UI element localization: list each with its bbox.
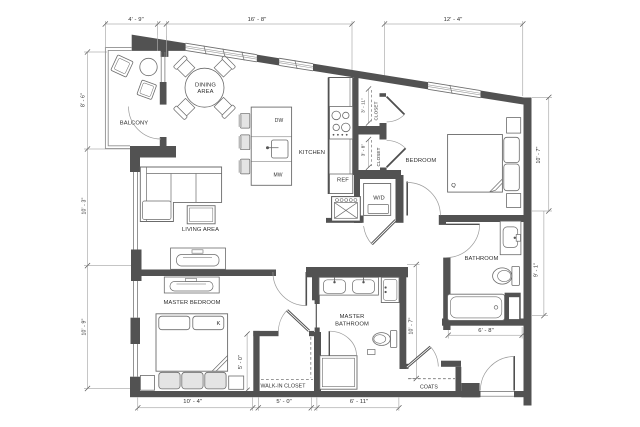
svg-text:6' - 8": 6' - 8" xyxy=(478,328,493,334)
svg-text:BATHROOM: BATHROOM xyxy=(465,256,499,262)
svg-text:LIVING AREA: LIVING AREA xyxy=(182,227,219,233)
svg-text:COATS: COATS xyxy=(420,385,438,391)
svg-text:10' - 3": 10' - 3" xyxy=(82,197,88,214)
svg-text:16' - 8": 16' - 8" xyxy=(248,17,267,23)
svg-text:10' - 7": 10' - 7" xyxy=(536,146,542,163)
svg-text:CLOSET: CLOSET xyxy=(376,147,381,166)
svg-text:5' - 0": 5' - 0" xyxy=(276,399,291,405)
svg-text:KITCHEN: KITCHEN xyxy=(299,150,325,156)
svg-text:Q: Q xyxy=(451,183,456,189)
svg-text:5' - 0": 5' - 0" xyxy=(238,355,244,369)
svg-text:6' - 11": 6' - 11" xyxy=(350,399,368,405)
svg-text:MW: MW xyxy=(273,173,282,179)
svg-text:BATHROOM: BATHROOM xyxy=(335,322,369,328)
svg-text:WALK-IN CLOSET: WALK-IN CLOSET xyxy=(260,384,306,390)
svg-text:4' - 9": 4' - 9" xyxy=(128,17,143,23)
svg-text:DINING: DINING xyxy=(195,82,216,88)
svg-text:8' - 6": 8' - 6" xyxy=(81,93,87,107)
svg-text:CLOSET: CLOSET xyxy=(374,101,379,120)
svg-text:9' - 1": 9' - 1" xyxy=(534,263,540,277)
svg-text:3' - 11": 3' - 11" xyxy=(361,98,366,113)
svg-text:3' - 8": 3' - 8" xyxy=(361,144,366,157)
svg-text:MASTER: MASTER xyxy=(340,314,365,320)
svg-text:MASTER BEDROOM: MASTER BEDROOM xyxy=(163,300,220,306)
svg-text:12' - 4": 12' - 4" xyxy=(444,17,463,23)
svg-text:W/D: W/D xyxy=(373,195,385,201)
svg-text:10' - 7": 10' - 7" xyxy=(409,317,415,334)
svg-text:10' - 4": 10' - 4" xyxy=(183,399,202,405)
svg-text:BALCONY: BALCONY xyxy=(120,121,148,127)
svg-text:10' - 9": 10' - 9" xyxy=(82,318,88,335)
svg-text:BEDROOM: BEDROOM xyxy=(406,158,437,164)
svg-text:AREA: AREA xyxy=(197,89,213,95)
svg-text:K: K xyxy=(217,321,221,327)
svg-text:DW: DW xyxy=(275,118,284,124)
svg-text:REF: REF xyxy=(337,177,349,183)
